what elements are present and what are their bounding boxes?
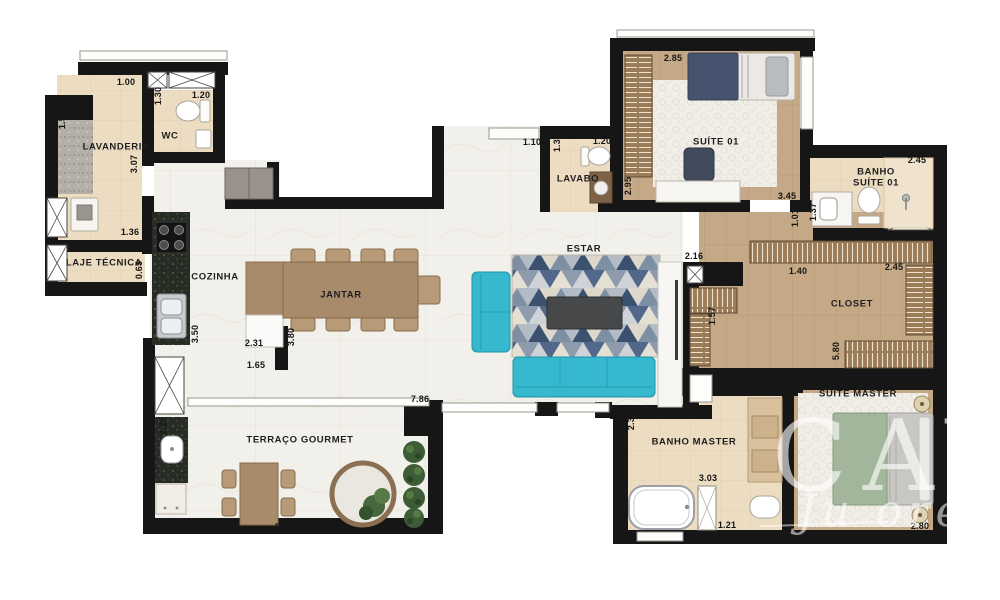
dim-jantar-h: 3.80: [286, 328, 296, 346]
dim-closet-len: 5.80: [831, 342, 841, 360]
tv-panel: [658, 262, 682, 407]
shower-glass: [698, 486, 716, 530]
dim-banho1-left: 1.37: [808, 203, 818, 221]
dim-closet-entry: 2.16: [685, 251, 703, 261]
master-bed: [833, 413, 933, 505]
dim-terrace-w: 5.24: [275, 522, 293, 532]
dim-banho1-top: 2.45: [908, 155, 926, 165]
dim-suite1-bottom: 3.45: [778, 191, 796, 201]
room-label-closet: CLOSET: [831, 299, 873, 310]
lavabo-toilet: [581, 147, 610, 166]
banho1-toilet: [858, 187, 880, 224]
room-label-jantar: JANTAR: [320, 290, 361, 301]
wc-sink: [196, 130, 211, 148]
suite1-wardrobe: [625, 55, 652, 177]
sofa-large: [513, 357, 655, 397]
suite1-chair: [684, 148, 714, 181]
dim-wc-left: 1.30: [153, 87, 163, 105]
room-label-suite-master: SUÍTE MASTER: [819, 389, 897, 400]
dim-lavabo-top: 1.20: [593, 136, 611, 146]
dim-wc-top: 1.20: [192, 90, 210, 100]
dim-banhom-left: 2.30: [626, 412, 636, 430]
dim-lav-top: 1.00: [117, 77, 135, 87]
room-label-suite1: SUÍTE 01: [693, 137, 739, 148]
room-label-wc: WC: [161, 131, 178, 142]
dim-banhom-door: 1.21: [718, 520, 736, 530]
suite1-sideboard: [656, 181, 740, 202]
dim-closet-left: 1.57: [707, 307, 717, 325]
floor-plan: LAVANDERIA WC LAJE TÉCNICA COZINHA JANTA…: [0, 0, 1000, 600]
suite1-bed: [688, 53, 795, 100]
dim-living-w: 7.86: [411, 394, 429, 404]
dim-jantar-w: 2.31: [245, 338, 263, 348]
dim-laje: 0.65: [134, 261, 144, 279]
room-label-banho-suite1-l1: BANHO: [857, 167, 895, 178]
room-label-banho-suite1-l2: SUÍTE 01: [853, 178, 899, 189]
dim-lav-right: 3.07: [129, 155, 139, 173]
laundry-tank: [71, 198, 98, 231]
sofa-small: [472, 272, 510, 352]
room-label-terraco-gourmet: TERRAÇO GOURMET: [246, 435, 353, 446]
dim-terrace-left: 2.25: [158, 417, 168, 435]
dim-banhom-w: 3.03: [699, 473, 717, 483]
room-label-estar: ESTAR: [567, 244, 602, 255]
banhom-vanity: [748, 398, 782, 482]
terrace-sink: [161, 436, 183, 463]
room-label-lavanderia: LAVANDERIA: [83, 142, 150, 153]
terrace-planter: [332, 463, 394, 525]
dim-lavabo-left: 1.30: [552, 134, 562, 152]
kitchen-sink: [157, 294, 186, 338]
room-label-banho-master: BANHO MASTER: [652, 437, 737, 448]
dim-suite1-nub: 1.01: [790, 209, 800, 227]
dim-lav-bottom: 1.36: [121, 227, 139, 237]
coffee-table: [547, 297, 622, 329]
terrace-cabinet: [156, 484, 186, 514]
banhom-sink: [750, 496, 780, 518]
dim-lav-left: 1.50: [57, 111, 67, 129]
dim-suite1-top: 2.85: [664, 53, 682, 63]
dim-suite1-left: 2.95: [623, 177, 633, 195]
dim-cozinha: 3.50: [190, 325, 200, 343]
dining-sideboard: [246, 262, 283, 347]
dim-closet-top: 1.40: [789, 266, 807, 276]
room-label-lavabo: LAVABO: [557, 174, 599, 185]
dim-entry-door: 1.10: [523, 137, 541, 147]
dim-closet-top-right: 2.45: [885, 262, 903, 272]
room-label-laje-tecnica: LAJE TÉCNICA: [66, 258, 142, 269]
fridge-cabinet: [225, 168, 273, 199]
banho1-vanity: [812, 192, 852, 226]
wc-toilet: [176, 100, 210, 122]
dim-island: 1.65: [247, 360, 265, 370]
dim-terrace-nub: 1.84: [403, 417, 413, 435]
bathtub: [629, 486, 694, 529]
room-label-cozinha: COZINHA: [191, 272, 238, 283]
cooktop: [156, 222, 187, 253]
dim-master-bottom: 2.80: [911, 521, 929, 531]
dim-master-left: 3.11: [769, 377, 779, 395]
